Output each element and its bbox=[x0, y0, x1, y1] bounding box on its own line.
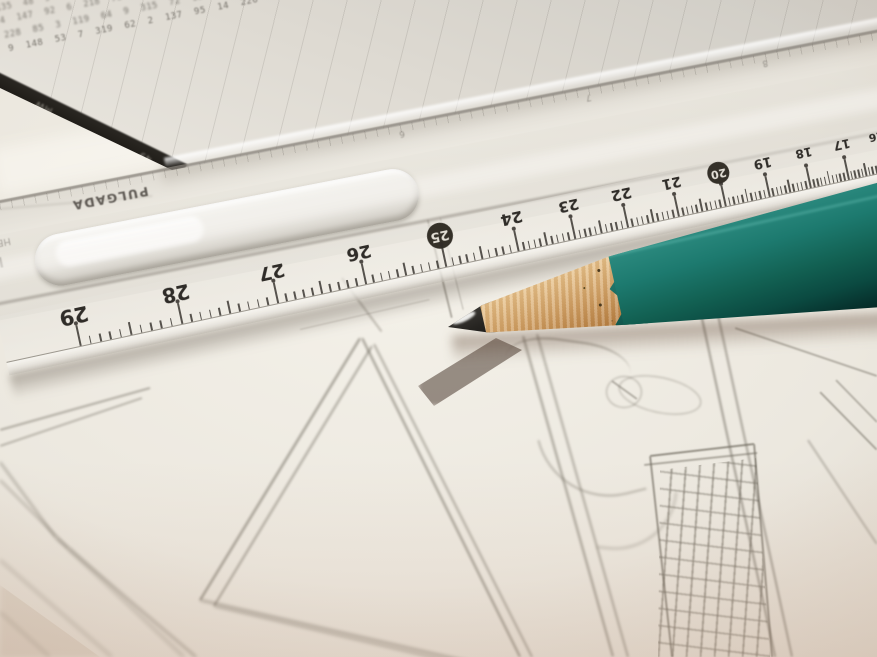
ruler-number: 16 bbox=[868, 128, 877, 144]
sketch-ellipse bbox=[606, 376, 642, 408]
sketch-stroke bbox=[819, 391, 877, 450]
photo: 418 27 9 118 3 842 56 12 7 336 94 8 215 … bbox=[0, 0, 877, 657]
sketch-stroke bbox=[199, 337, 361, 600]
sketch-stroke bbox=[67, 547, 184, 657]
paper-corner-shade bbox=[0, 585, 100, 657]
sketch-stroke bbox=[213, 345, 373, 606]
sketch-stroke bbox=[200, 599, 471, 657]
sketch-stroke bbox=[807, 440, 877, 545]
sketch-stroke bbox=[0, 479, 69, 548]
